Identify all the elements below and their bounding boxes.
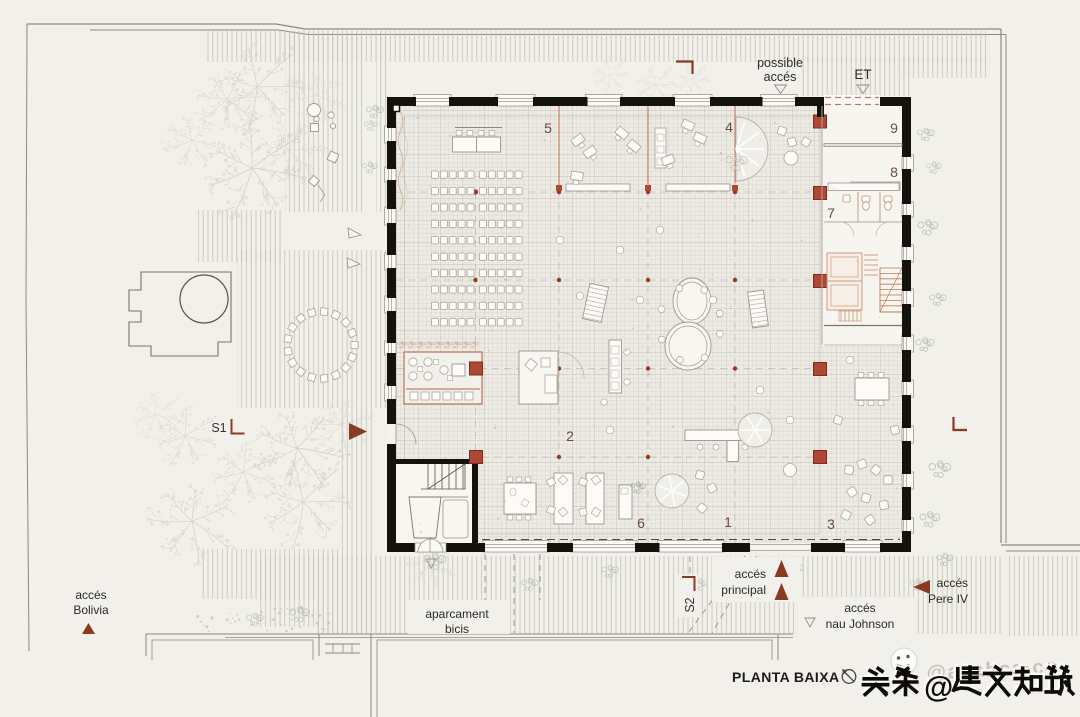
svg-text:5: 5 bbox=[544, 120, 552, 136]
svg-text:@: @ bbox=[924, 671, 953, 704]
svg-text:ET: ET bbox=[854, 67, 871, 82]
svg-text:S2: S2 bbox=[683, 597, 697, 612]
svg-text:accés: accés bbox=[844, 601, 875, 615]
svg-text:accés: accés bbox=[764, 70, 797, 84]
svg-text:accés: accés bbox=[937, 576, 968, 590]
svg-text:accés: accés bbox=[75, 588, 106, 602]
svg-text:aparcament: aparcament bbox=[425, 607, 489, 621]
svg-text:3: 3 bbox=[827, 516, 835, 532]
svg-text:9: 9 bbox=[890, 120, 898, 136]
svg-text:7: 7 bbox=[827, 205, 835, 221]
svg-text:4: 4 bbox=[725, 119, 733, 135]
svg-text:PLANTA BAIXA: PLANTA BAIXA bbox=[732, 669, 839, 685]
svg-text:Bolivia: Bolivia bbox=[73, 603, 109, 617]
svg-text:S1: S1 bbox=[211, 421, 226, 435]
svg-text:possible: possible bbox=[757, 56, 803, 70]
svg-text:bicis: bicis bbox=[445, 622, 469, 636]
svg-text:1: 1 bbox=[724, 514, 732, 530]
svg-text:accés: accés bbox=[735, 567, 766, 581]
svg-text:Pere IV: Pere IV bbox=[928, 592, 968, 606]
svg-text:6: 6 bbox=[637, 515, 645, 531]
svg-text:8: 8 bbox=[890, 164, 898, 180]
svg-text:principal: principal bbox=[721, 583, 766, 597]
svg-text:nau Johnson: nau Johnson bbox=[826, 617, 895, 631]
svg-text:2: 2 bbox=[566, 428, 574, 444]
